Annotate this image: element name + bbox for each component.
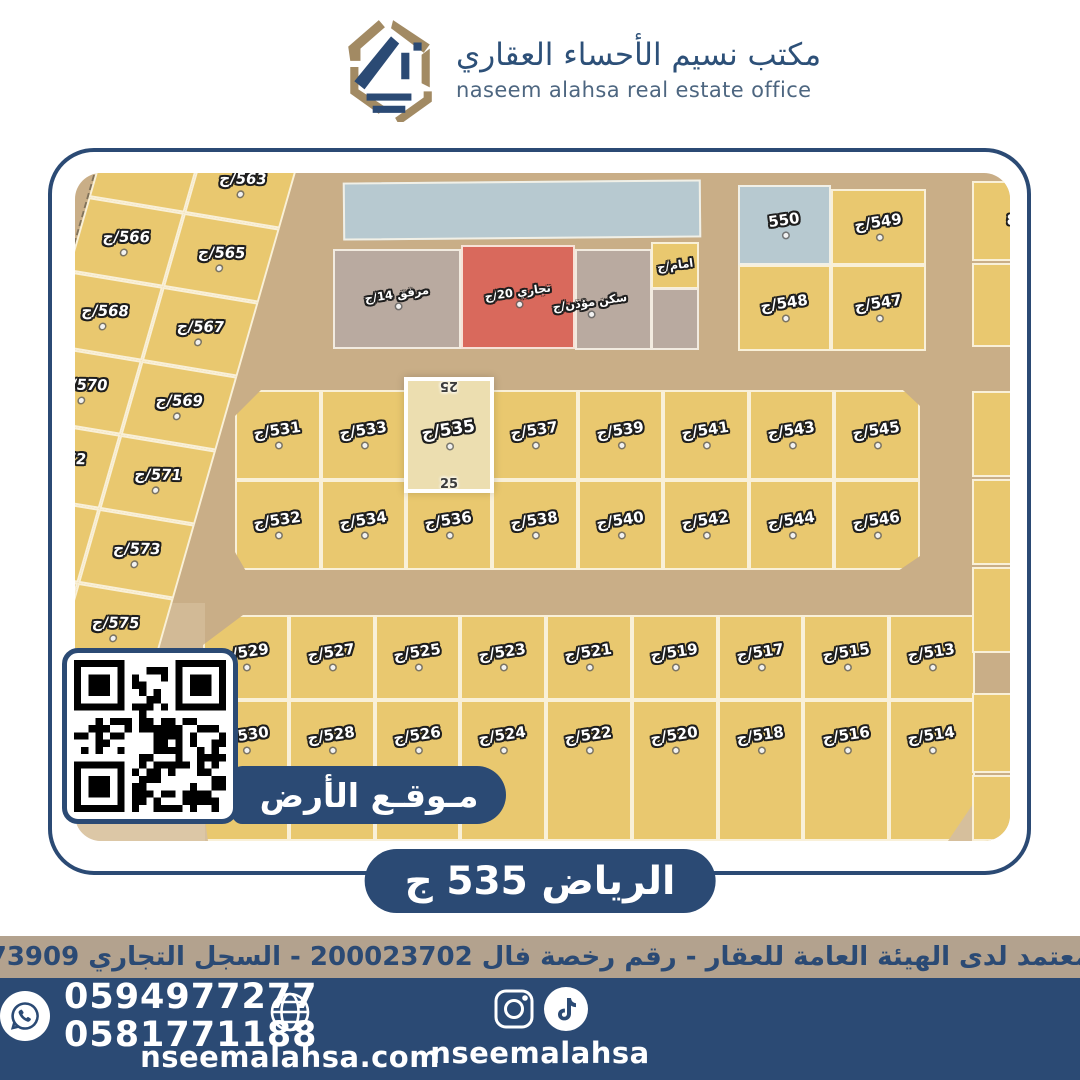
dimension-label-top: 25 (408, 378, 490, 393)
plot-549: 549/ج (831, 189, 926, 265)
website-group: nseemalahsa.com (135, 989, 445, 1074)
tiktok-icon (544, 987, 588, 1031)
header: مكتب نسيم الأحساء العقاري naseem alahsa … (338, 16, 821, 122)
plot-538: 538/ج (492, 480, 578, 570)
plot-527: 527/ج (289, 615, 375, 700)
plot-536: 536/ج (406, 480, 492, 570)
plot-532: 532/ج (235, 480, 321, 570)
plot-537: 537/ج (492, 390, 578, 480)
location-banner: مـوقـع الأرض (232, 766, 506, 824)
office-name-english: naseem alahsa real estate office (456, 78, 821, 102)
plot-517: 517/ج (718, 615, 804, 700)
blue-parcel-strip (343, 179, 701, 240)
muezzin-plot-label: سكن مؤذن/ج (553, 291, 628, 317)
social-handle: nseemalahsa (430, 1036, 650, 1070)
middle-plot-block: 531/ج 533/ج 537/ج 539/ج 541/ج 543/ج 545/… (235, 390, 920, 570)
plot-521: 521/ج (546, 615, 632, 700)
edge-plot-fragment: 8 (1007, 211, 1010, 229)
plot-514: 514/ج (889, 700, 975, 841)
globe-icon (267, 989, 313, 1035)
plot-541: 541/ج (663, 390, 749, 480)
plot-535-label: 535/ج (420, 418, 477, 452)
license-strip: مسوق معتمد لدى الهيئة العامة للعقار - رق… (0, 936, 1080, 978)
website-url: nseemalahsa.com (140, 1040, 440, 1074)
plot-531: 531/ج (235, 390, 321, 480)
plot-540: 540/ج (578, 480, 664, 570)
plot-545: 545/ج (834, 390, 920, 480)
plot-516: 516/ج (803, 700, 889, 841)
plot-519: 519/ج (632, 615, 718, 700)
instagram-icon (492, 987, 536, 1031)
whatsapp-icon (0, 991, 50, 1041)
edge-plot (972, 567, 1010, 653)
plot-550: 550 (738, 185, 831, 265)
plot-523: 523/ج (460, 615, 546, 700)
highlighted-plot-535: 25 535/ج 25 (404, 377, 494, 493)
plot-518: 518/ج (718, 700, 804, 841)
muezzin-plot (651, 288, 699, 350)
edge-plot (972, 479, 1010, 565)
plot-513: 513/ج (889, 615, 975, 700)
plot-534: 534/ج (321, 480, 407, 570)
dimension-label-bottom: 25 (408, 477, 490, 492)
plot-515: 515/ج (803, 615, 889, 700)
plot-542: 542/ج (663, 480, 749, 570)
plot-title: الرياض 535 ج (405, 859, 676, 904)
qr-code (62, 648, 238, 824)
edge-plot: 8 (972, 181, 1010, 261)
imam-plot: امام/ج (651, 242, 699, 289)
edge-plot (972, 693, 1010, 773)
plot-520: 520/ج (632, 700, 718, 841)
office-name-arabic: مكتب نسيم الأحساء العقاري (456, 36, 821, 75)
plot-title-pill: الرياض 535 ج (365, 849, 716, 913)
logo-mark-icon (338, 16, 440, 122)
plot-547: 547/ج (831, 265, 926, 351)
plot-539: 539/ج (578, 390, 664, 480)
utility-plot: مرفق 14/ج (333, 249, 461, 349)
footer: nseemalahsa.com nseemalahsa (0, 978, 1080, 1080)
license-text: مسوق معتمد لدى الهيئة العامة للعقار - رق… (0, 942, 1080, 972)
plot-522: 522/ج (546, 700, 632, 841)
plot-544: 544/ج (749, 480, 835, 570)
edge-plot (972, 263, 1010, 347)
plot-543: 543/ج (749, 390, 835, 480)
edge-plot (972, 391, 1010, 477)
plot-525: 525/ج (375, 615, 461, 700)
plot-533: 533/ج (321, 390, 407, 480)
edge-plot (972, 775, 1010, 841)
social-group: nseemalahsa (430, 987, 650, 1070)
plot-548: 548/ج (738, 265, 831, 351)
plot-546: 546/ج (834, 480, 920, 570)
location-banner-label: مـوقـع الأرض (260, 776, 479, 815)
